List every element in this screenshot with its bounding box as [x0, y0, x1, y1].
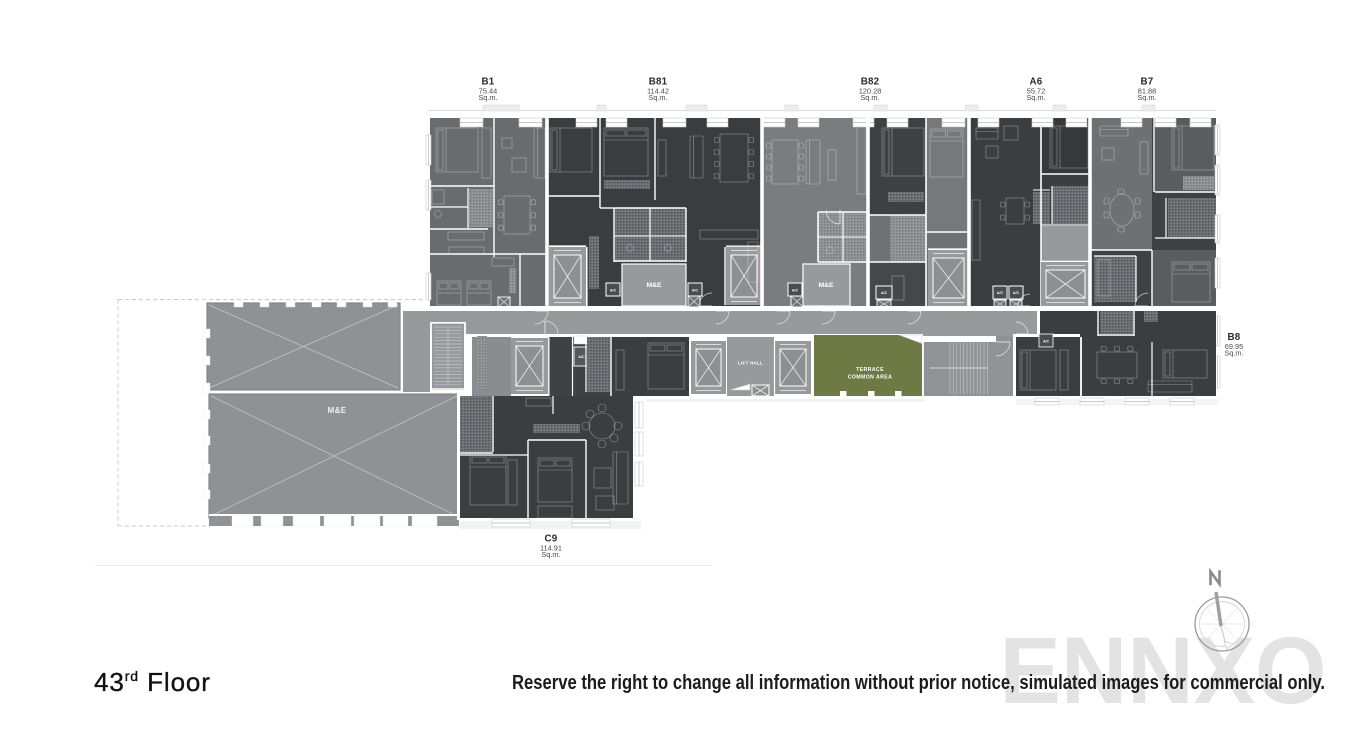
svg-text:M&E: M&E: [818, 282, 834, 289]
svg-text:Reserve the right to change al: Reserve the right to change all informat…: [512, 672, 1325, 694]
svg-text:M&E: M&E: [328, 406, 347, 415]
svg-text:TERRACE: TERRACE: [856, 367, 884, 373]
svg-text:COMMON AREA: COMMON AREA: [848, 375, 893, 381]
svg-text:Sq.m.: Sq.m.: [648, 93, 667, 102]
svg-text:ENNXO: ENNXO: [1000, 618, 1327, 724]
svg-text:Sq.m.: Sq.m.: [1137, 93, 1156, 102]
svg-text:A/C: A/C: [1013, 291, 1020, 295]
svg-text:43rd Floor: 43rd Floor: [94, 667, 211, 697]
svg-text:Sq.m.: Sq.m.: [541, 550, 560, 559]
svg-text:Sq.m.: Sq.m.: [1026, 93, 1045, 102]
svg-text:A/C: A/C: [578, 355, 585, 359]
svg-text:Sq.m.: Sq.m.: [1224, 348, 1243, 357]
svg-text:A/C: A/C: [881, 291, 888, 295]
svg-text:A/C: A/C: [610, 289, 617, 293]
svg-text:A/C: A/C: [692, 289, 699, 293]
svg-text:A/C: A/C: [997, 291, 1004, 295]
svg-text:LIFT HALL: LIFT HALL: [738, 361, 763, 366]
svg-text:A/C: A/C: [1043, 340, 1049, 344]
svg-text:A/C: A/C: [792, 289, 799, 293]
svg-text:Sq.m.: Sq.m.: [478, 93, 497, 102]
svg-text:M&E: M&E: [646, 282, 662, 289]
svg-text:Sq.m.: Sq.m.: [860, 93, 879, 102]
